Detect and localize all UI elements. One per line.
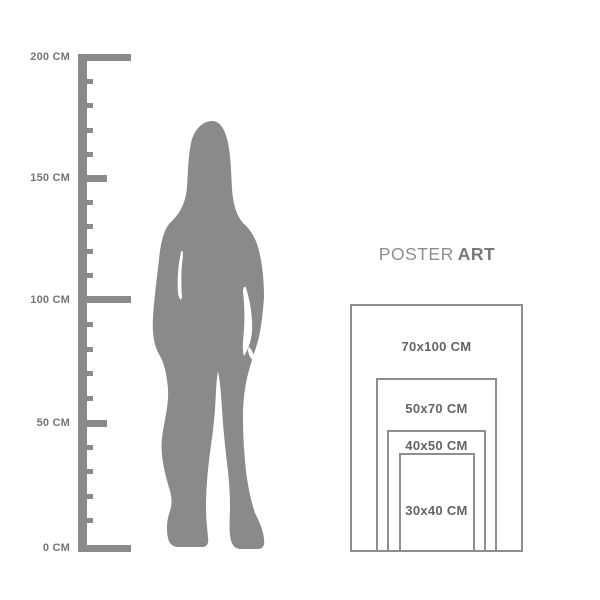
ruler-graphic	[0, 0, 140, 560]
ruler-label-200: 200 CM	[12, 50, 70, 64]
size-label-70x100: 70x100 CM	[376, 339, 497, 354]
woman-silhouette	[150, 118, 270, 550]
ruler-label-100: 100 CM	[12, 293, 70, 307]
poster-size-guide: 200 CM 150 CM 100 CM 50 CM 0 CM POSTERAR…	[0, 0, 600, 600]
ruler-label-150: 150 CM	[12, 171, 70, 185]
ruler-label-50: 50 CM	[12, 416, 70, 430]
size-label-30x40: 30x40 CM	[376, 503, 497, 518]
size-label-40x50: 40x50 CM	[376, 438, 497, 453]
brand-word-poster: POSTER	[379, 244, 454, 264]
brand-title: POSTERART	[350, 244, 524, 265]
size-label-50x70: 50x70 CM	[376, 401, 497, 416]
ruler-label-0: 0 CM	[12, 541, 70, 555]
brand-word-art: ART	[458, 244, 495, 264]
